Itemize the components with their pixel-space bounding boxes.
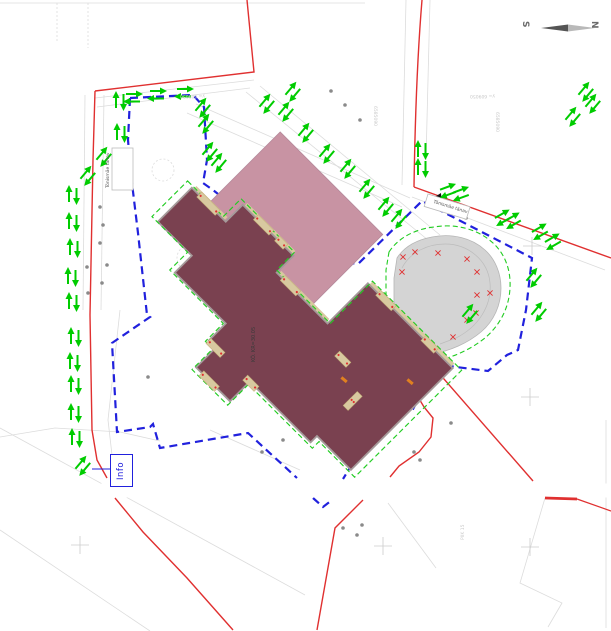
- compass-north-label: N: [599, 21, 607, 31]
- parcel-red-lines-lower: [115, 498, 611, 630]
- grid-label-x-left: 6585090: [377, 106, 397, 111]
- info-box[interactable]: Info: [110, 454, 133, 487]
- north-arrow-icon: [541, 25, 595, 32]
- grid-label-y-right: y= 609050: [470, 93, 495, 98]
- benchmark-label: PIIK 15: [461, 540, 476, 545]
- compass-south-label: S: [530, 21, 536, 31]
- site-plan-drawing: [0, 0, 611, 631]
- grid-label-x-right: 6585090: [499, 112, 519, 117]
- site-plan-canvas: N S Info Tõnismäe tänav Tõnismäe tänav K…: [0, 0, 611, 631]
- street-label-left: Tõnismäe tänav: [106, 188, 142, 193]
- info-label: Info: [117, 461, 127, 479]
- sheet-gap: [0, 484, 611, 498]
- building-elevation-label: KÕ. KR=30.05: [251, 362, 286, 368]
- grid-label-y-left: y= 609050: [180, 93, 205, 98]
